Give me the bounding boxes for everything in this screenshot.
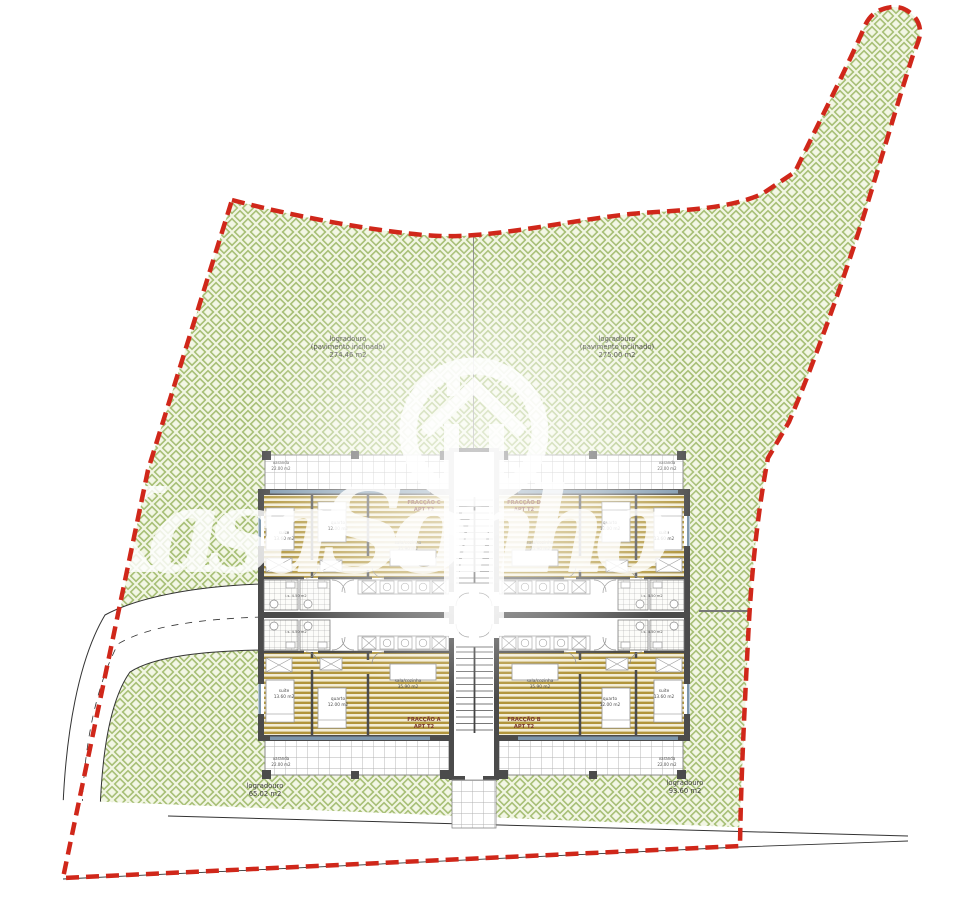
site-plan-drawing: logradouro (pavimento inclinado) 274.46 … [0, 0, 960, 911]
svg-text:suite: suite [659, 688, 670, 694]
svg-text:quarto: quarto [331, 696, 346, 702]
svg-text:12.00 m2: 12.00 m2 [328, 702, 349, 708]
label-logradouro-se: logradouro [667, 779, 704, 787]
svg-text:suite: suite [279, 688, 290, 694]
svg-text:12.00 m2: 12.00 m2 [600, 702, 621, 708]
svg-text:22.00 m2: 22.00 m2 [271, 762, 291, 767]
label-fraction-bottom-left: FRACÇÃO A [407, 716, 440, 723]
svg-text:13.60 m2: 13.60 m2 [654, 694, 675, 700]
label-logradouro-sw: logradouro [247, 782, 284, 790]
svg-text:65.02 m2: 65.02 m2 [249, 790, 282, 798]
svg-text:i.s. 4.50 m2: i.s. 4.50 m2 [641, 630, 662, 634]
svg-text:22.00 m2: 22.00 m2 [657, 762, 677, 767]
entry-walkway [452, 780, 496, 828]
svg-text:APT T2: APT T2 [414, 724, 435, 730]
svg-text:APT T2: APT T2 [514, 724, 535, 730]
svg-text:93.60 m2: 93.60 m2 [669, 787, 702, 795]
svg-text:varanda: varanda [659, 756, 676, 761]
svg-text:13.60 m2: 13.60 m2 [274, 694, 295, 700]
svg-text:i.s. 4.50 m2: i.s. 4.50 m2 [285, 630, 306, 634]
svg-text:quarto: quarto [603, 696, 618, 702]
plan-svg: logradouro (pavimento inclinado) 274.46 … [0, 0, 960, 911]
label-fraction-bottom-right: FRACÇÃO B [507, 716, 540, 723]
svg-text:varanda: varanda [273, 756, 290, 761]
watermark-brand-text: KasaSonho [57, 461, 672, 600]
